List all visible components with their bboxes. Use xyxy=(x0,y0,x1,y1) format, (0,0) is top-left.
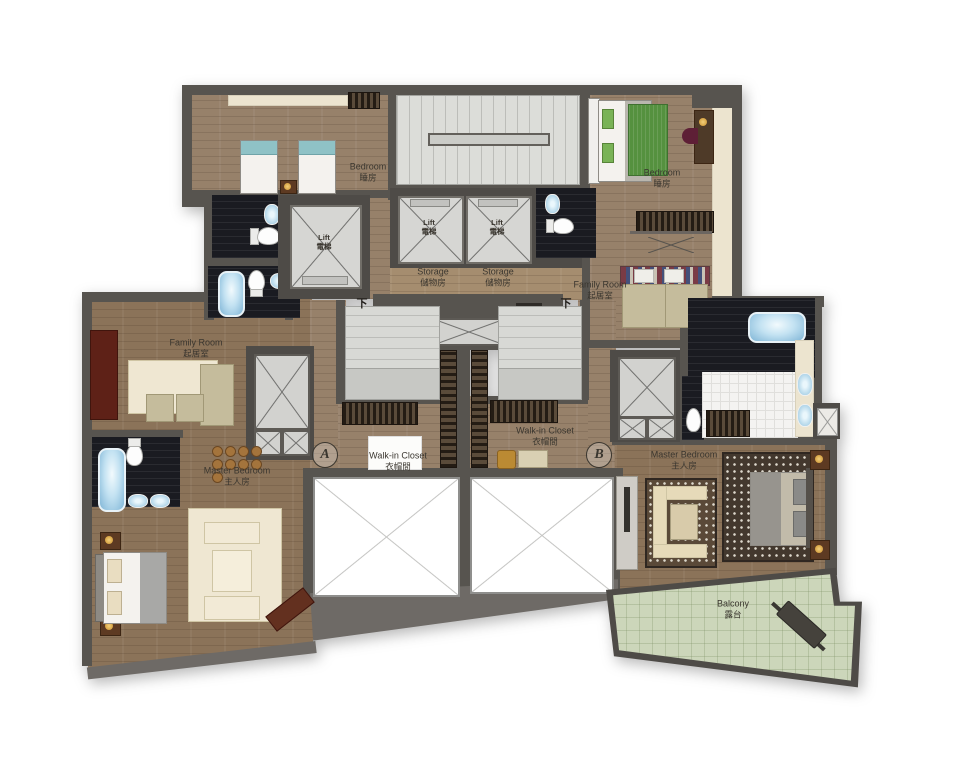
room-label-balcony: Balcony露台 xyxy=(717,599,749,620)
tv-icon xyxy=(624,487,630,532)
room-label-family-right: Family Room起居室 xyxy=(573,280,626,301)
wall-top xyxy=(182,85,742,95)
toilet-icon xyxy=(126,444,143,466)
bench-icon xyxy=(204,522,260,544)
bed-pillow xyxy=(107,591,122,615)
elevator-left-cab xyxy=(254,354,310,430)
room-label-storage-1: Storage儲物房 xyxy=(417,267,449,288)
lamp-icon xyxy=(815,545,823,553)
ottoman-icon xyxy=(146,394,174,422)
wall-corridor-head xyxy=(692,88,734,108)
closet-left-rack xyxy=(342,402,418,425)
lift-left-door xyxy=(302,276,348,285)
bed-pillow xyxy=(602,143,614,163)
wall-voids-left xyxy=(303,468,313,600)
unit-marker-a: A xyxy=(312,442,338,468)
sink-icon xyxy=(797,404,813,427)
sofa-chaise xyxy=(200,364,234,426)
toilet-icon xyxy=(552,218,574,234)
room-label-closet-right: Walk-in Closet衣帽間 xyxy=(516,426,574,447)
toilet-tank xyxy=(128,438,141,447)
toilet-icon xyxy=(257,227,280,245)
shelf-line xyxy=(630,231,712,234)
table-icon xyxy=(212,550,252,592)
sink-icon xyxy=(545,194,560,214)
toilet-tank xyxy=(250,289,263,297)
closet-ladder-rack xyxy=(471,350,488,468)
room-label-bedroom-top-right: Bedroom睡房 xyxy=(644,168,681,189)
sofa-bottom xyxy=(653,544,707,558)
wall-left-upper xyxy=(182,85,192,207)
toilet-tank xyxy=(546,219,554,233)
lamp-icon xyxy=(815,455,823,463)
bath-closet-rack xyxy=(706,410,750,437)
stair-down-right-landing xyxy=(498,368,582,400)
sink-icon xyxy=(797,373,813,396)
core-duct-wide xyxy=(434,318,504,346)
sink-icon xyxy=(150,494,170,508)
stair-down-label-left: 下 xyxy=(357,295,368,311)
room-label-closet-left: Walk-in Closet衣帽間 xyxy=(369,451,427,472)
stair-rail xyxy=(428,133,550,146)
stair-down-left-treads xyxy=(345,306,440,372)
bed-pillow xyxy=(299,141,335,155)
master-right-bed-icon xyxy=(750,472,810,546)
bed-blanket xyxy=(140,553,166,623)
floor-plan: Bedroom睡房 Bedroom睡房 Lift電梯 Lift電梯 Lift電梯… xyxy=(0,0,966,759)
floor-plan-screenshot: Bedroom睡房 Bedroom睡房 Lift電梯 Lift電梯 Lift電梯… xyxy=(0,0,966,759)
coffee-table-icon xyxy=(670,504,698,540)
room-label-master-right: Master Bedroom主人房 xyxy=(651,450,718,471)
sink-icon xyxy=(128,494,148,508)
void-left xyxy=(313,477,460,597)
elevator-left-duct xyxy=(282,430,310,456)
sofa-pillow xyxy=(664,269,684,283)
stair-down-left-landing xyxy=(345,368,440,400)
dresser-icon xyxy=(636,211,714,233)
lift-door xyxy=(410,199,450,207)
desk-chair-icon xyxy=(682,128,698,144)
vent-grille-icon xyxy=(348,92,380,109)
room-label-lift-center-2: Lift電梯 xyxy=(490,219,505,237)
wall-stairdown-left-outer xyxy=(336,300,345,400)
elevator-right-duct xyxy=(618,417,647,440)
bench-icon xyxy=(204,596,260,620)
void-right xyxy=(470,477,614,594)
bed-pillow xyxy=(793,479,807,505)
elevator-right-cab xyxy=(618,357,676,418)
wall-right-outer-upper xyxy=(732,85,742,310)
stair-down-right-treads xyxy=(498,306,582,372)
window-sill xyxy=(228,95,348,106)
room-label-lift-left: Lift電梯 xyxy=(317,234,332,252)
bed-pillow xyxy=(241,141,277,155)
wall-core-stem xyxy=(456,347,470,469)
wall-family-left-top xyxy=(82,292,212,302)
room-label-family-left: Family Room起居室 xyxy=(169,338,222,359)
closet-stool-icon xyxy=(497,450,516,469)
sofa-seam xyxy=(665,285,666,327)
green-rug xyxy=(628,104,668,176)
closet-right-rack xyxy=(490,400,558,423)
duct-right xyxy=(817,408,838,436)
bathtub-icon xyxy=(98,448,126,512)
stair-down-label-right: 下 xyxy=(561,295,572,311)
bathtub-icon xyxy=(748,312,806,343)
unit-marker-b: B xyxy=(586,442,612,468)
bathtub-icon xyxy=(218,271,245,317)
twin-bed-icon xyxy=(240,140,278,194)
ceiling-fan-icon xyxy=(648,237,694,253)
desk-ornament-icon xyxy=(699,118,707,126)
cabinet-icon xyxy=(90,330,118,420)
room-label-bedroom-top-left: Bedroom睡房 xyxy=(350,162,387,183)
lamp-icon xyxy=(105,536,113,544)
twin-bed-icon xyxy=(298,140,336,194)
toilet-icon xyxy=(686,408,701,432)
bed-pillow xyxy=(793,511,807,537)
bed-pillow xyxy=(602,109,614,129)
lift-door xyxy=(478,199,518,207)
closet-ladder-rack xyxy=(440,350,457,468)
sofa-pillow xyxy=(634,269,654,283)
bed-pillow xyxy=(107,559,122,583)
room-label-master-left: Master Bedroom主人房 xyxy=(204,466,271,487)
room-label-lift-center-1: Lift電梯 xyxy=(422,219,437,237)
room-label-storage-2: Storage儲物房 xyxy=(482,267,514,288)
ottoman-icon xyxy=(176,394,204,422)
lamp-icon xyxy=(284,183,291,190)
closet-bench-icon xyxy=(518,450,548,468)
master-left-bed-icon xyxy=(103,552,167,624)
bed-duvet xyxy=(751,473,781,545)
headboard xyxy=(806,468,813,548)
elevator-right-duct xyxy=(647,417,676,440)
